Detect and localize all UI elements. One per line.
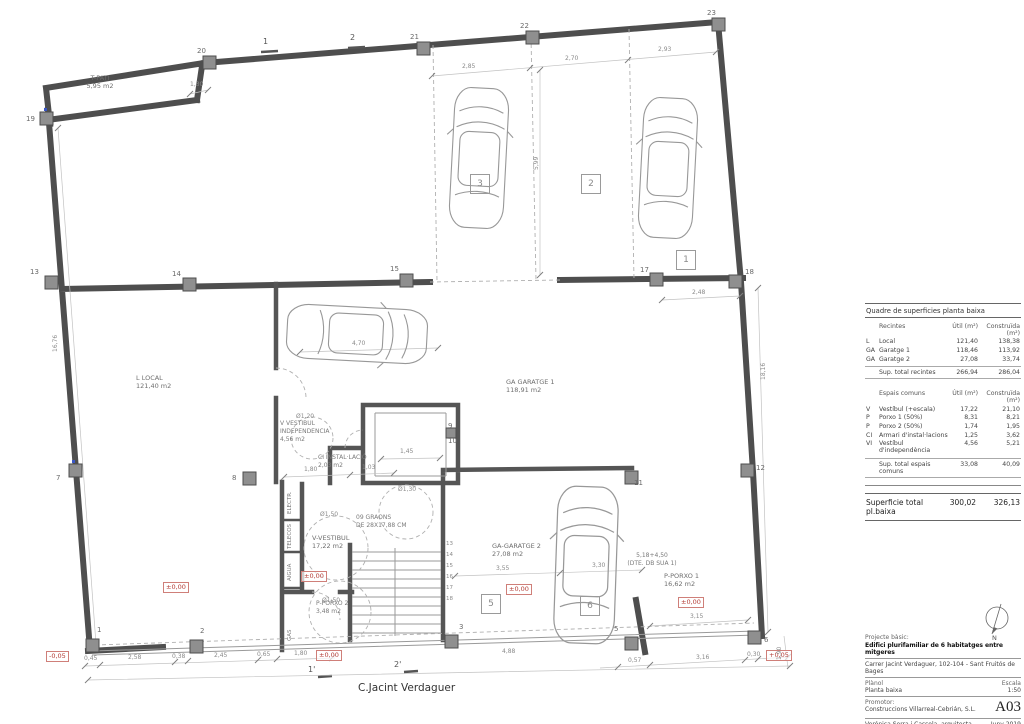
grid-label-7: 7 xyxy=(56,474,60,483)
room-label-local: L LOCAL121,40 m2 xyxy=(136,374,171,391)
room-label-vestibul: V-VESTIBUL17,22 m2 xyxy=(312,534,349,551)
table-row: VVestíbul (+escala) 17,2221,10 xyxy=(865,405,1021,414)
dim-label: 3,30 xyxy=(592,562,605,570)
grid-label-20: 20 xyxy=(197,47,206,56)
grid-label-12: 12 xyxy=(756,464,765,473)
dim-label: 2,85 xyxy=(462,63,475,71)
grid-label-15: 15 xyxy=(390,265,399,274)
closet-label-electr: ELECTR. xyxy=(287,491,294,514)
table-row: PPorxo 1 (50%) 8,318,21 xyxy=(865,414,1021,423)
dim-label: 4,88 xyxy=(502,648,515,656)
dim-label: 1,90 xyxy=(776,647,784,660)
dim-label: 1,45 xyxy=(400,448,413,456)
walls-detail xyxy=(261,47,418,677)
table-grand-total: Superficie total pl.baixa 300,02 326,13 xyxy=(865,493,1021,521)
level-marker-zero: ±0,00 xyxy=(678,597,704,608)
car-garage1 xyxy=(285,297,428,370)
level-marker-zero: ±0,00 xyxy=(163,582,189,593)
grid-label-3: 3 xyxy=(459,623,463,632)
grid-label-17: 17 xyxy=(640,266,649,275)
grid-label-19: 19 xyxy=(26,115,35,124)
grid-label-11: 11 xyxy=(634,479,643,488)
dim-label: 3,16 xyxy=(696,654,709,662)
grid-label-13: 13 xyxy=(30,268,39,277)
table-row: PPorxo 2 (50%) 1,741,95 xyxy=(865,422,1021,431)
parking-number-6: 6 xyxy=(580,596,600,616)
dim-label: 4,70 xyxy=(352,340,365,348)
section-marker-2: 2 xyxy=(350,33,355,43)
table-row: CIArmari d'instal·lacions 1,253,62 xyxy=(865,431,1021,440)
dim-label: 3,15 xyxy=(690,613,703,621)
level-marker-zero: ±0,00 xyxy=(506,584,532,595)
level-marker-minus: -0,05 xyxy=(46,651,69,662)
circle-dia-label: Ø1,50 xyxy=(320,511,338,519)
table-header-espais: Espais comuns Útil (m²) Construïda (m²) xyxy=(865,389,1021,405)
dim-label: 18,16 xyxy=(760,363,768,380)
surface-table-title: Quadre de superficies planta baixa xyxy=(865,303,1021,318)
table-row: VIVestíbul d'independència 4,565,21 xyxy=(865,439,1021,455)
dim-label: 1,80 xyxy=(294,650,307,658)
table-subtotal-espais: Sup. total espais comuns 33,0840,09 xyxy=(865,458,1021,478)
grid-label-5: 5 xyxy=(614,625,618,634)
room-label-pati: T-PATI5,95 m2 xyxy=(70,74,130,91)
section-marker-2b: 2' xyxy=(394,660,401,670)
parking-number-3: 3 xyxy=(470,174,490,194)
title-block: Projecte bàsic: Edifici plurifamiliar de… xyxy=(865,634,1021,724)
grid-label-14: 14 xyxy=(172,270,181,279)
plan-name: Planta baixa xyxy=(865,687,902,694)
dim-label: 2,45 xyxy=(214,652,227,660)
grid-label-22: 22 xyxy=(520,22,529,31)
grid-label-18: 18 xyxy=(745,268,754,277)
grid-label-21: 21 xyxy=(410,33,419,42)
room-label-garatge2: GA-GARATGE 227,08 m2 xyxy=(492,542,541,559)
dim-label: 5,99 xyxy=(533,157,541,170)
dim-label: 2,48 xyxy=(692,289,705,297)
floorplan-sheet: T-PATI5,95 m2 L LOCAL121,40 m2 GA GARATG… xyxy=(0,0,1024,724)
table-row: GAGaratge 1 118,46113,92 xyxy=(865,346,1021,355)
grid-label-2: 2 xyxy=(200,627,204,636)
project-title: Edifici plurifamiliar de 6 habitatges en… xyxy=(865,641,1021,659)
car-spot3 xyxy=(442,86,515,229)
parking-number-1: 1 xyxy=(676,250,696,270)
grid-label-8: 8 xyxy=(232,474,236,483)
room-label-instal: CI INSTAL·LACIÓ2,03 m2 xyxy=(318,454,367,470)
dim-label: 16,76 xyxy=(52,335,60,352)
parking-number-2: 2 xyxy=(581,174,601,194)
surface-table: Quadre de superficies planta baixa Recin… xyxy=(865,303,1021,521)
thin-lines xyxy=(92,413,757,655)
street-label: C.Jacint Verdaguer xyxy=(358,682,455,694)
dim-label: 1,03 xyxy=(362,464,375,472)
table-header-recintes: Recintes Útil (m²) Construïda (m²) xyxy=(865,322,1021,338)
car-spot1 xyxy=(631,96,704,239)
closet-label-gas: GAS xyxy=(287,629,294,641)
dim-label: 0,65 xyxy=(257,651,270,659)
plan-scale-row: Plànol Planta baixa Escala 1:50 xyxy=(865,678,1021,697)
closet-label-aigua: AIGUA xyxy=(287,564,294,581)
grid-label-23: 23 xyxy=(707,9,716,18)
dim-label: 0,57 xyxy=(628,657,641,665)
dim-label: 1,80 xyxy=(304,466,317,474)
stair-riser-number: 14 xyxy=(446,552,453,559)
circle-dia-label: Ø1,20 xyxy=(296,413,314,421)
car-spot6 xyxy=(546,485,625,644)
grid-label-10: 10 xyxy=(448,437,457,446)
stair-riser-number: 15 xyxy=(446,563,453,570)
dim-label: 0,30 xyxy=(747,651,760,659)
dim-label: 2,58 xyxy=(128,654,141,662)
project-address: Carrer Jacint Verdaguer, 102-104 - Sant … xyxy=(865,659,1021,678)
dim-label: 2,93 xyxy=(658,46,671,54)
circle-dia-label: Ø1,30 xyxy=(398,486,416,494)
table-subtotal-recintes: Sup. total recintes 266,94286,04 xyxy=(865,366,1021,379)
level-marker-zero: ±0,00 xyxy=(301,571,327,582)
section-marker-1: 1 xyxy=(263,37,268,47)
room-label-vestibul-independencia: V VESTIBULINDEPENDENCIA 4,56 m2 xyxy=(280,420,330,443)
dim-label: 0,45 xyxy=(84,655,97,663)
parking-number-5: 5 xyxy=(481,594,501,614)
table-row: GAGaratge 2 27,0833,74 xyxy=(865,355,1021,364)
grid-label-1: 1 xyxy=(97,626,101,635)
stair-riser-number: 16 xyxy=(446,574,453,581)
section-marker-1b: 1' xyxy=(308,665,315,675)
promoter-row: Promotor: Construccions Villarreal-Cebri… xyxy=(865,697,1021,719)
sheet-number: A03 xyxy=(995,699,1021,716)
stair-riser-number: 13 xyxy=(446,541,453,548)
grid-label-9: 9 xyxy=(448,422,452,431)
promoter-name: Construccions Villarreal-Cebrián, S.L. xyxy=(865,706,976,713)
scale-value: 1:50 xyxy=(1008,687,1021,694)
architect-row: Verónica Serra i Cassola, arquitecta Jun… xyxy=(865,719,1021,724)
level-marker-zero: ±0,00 xyxy=(316,650,342,661)
stair-riser-number: 18 xyxy=(446,596,453,603)
closet-label-telecos: TELECOS xyxy=(287,524,294,549)
grid-label-6: 6 xyxy=(764,636,768,645)
dim-label: 1,30 xyxy=(190,81,203,89)
room-label-garatge1: GA GARATGE 1118,91 m2 xyxy=(506,378,555,395)
dim-label: 3,55 xyxy=(496,565,509,573)
table-row: LLocal 121,40138,38 xyxy=(865,338,1021,347)
dim-label: 2,70 xyxy=(565,55,578,63)
stair-riser-number: 17 xyxy=(446,585,453,592)
dim-label: 0,38 xyxy=(172,653,185,661)
project-type: Projecte bàsic: xyxy=(865,634,1021,641)
sua-note: 5,18+4,50(DTE. DB SUA 1) xyxy=(622,552,682,568)
room-label-porxo1: P-PORXO 116,62 m2 xyxy=(664,572,699,589)
stair-note: 09 GRAONSDE 28X17,88 CM xyxy=(356,514,407,530)
circle-dia-label: Ø1,50 xyxy=(322,597,340,605)
